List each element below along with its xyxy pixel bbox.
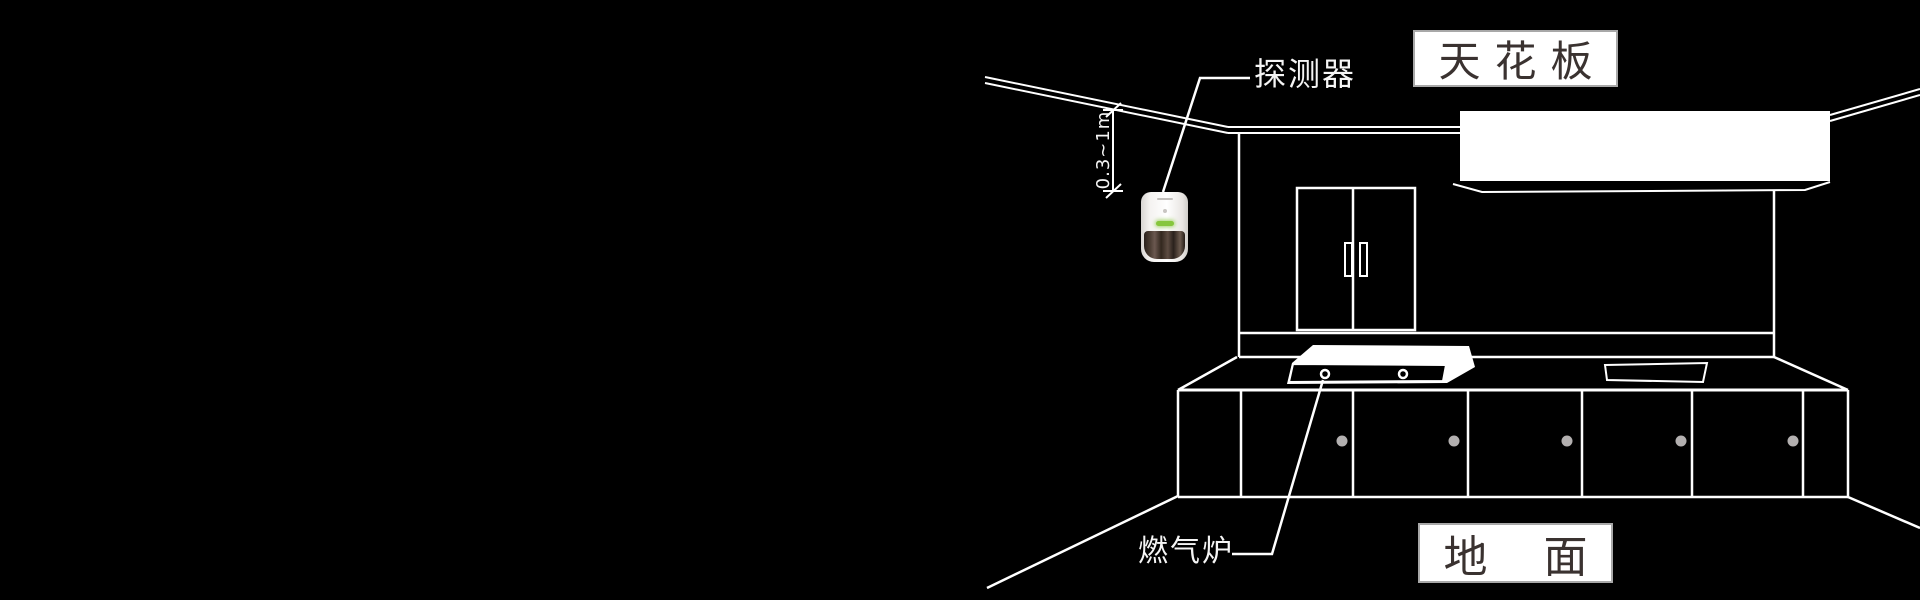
detector-led-green [1156, 221, 1174, 226]
gas-detector-device [1141, 192, 1188, 262]
gas-stove [1287, 345, 1475, 384]
detector-indicator-hole [1163, 209, 1167, 213]
countertop [1178, 357, 1848, 390]
detector-sensor-window [1144, 231, 1185, 259]
stove-leader-line [1232, 380, 1323, 554]
diagram-canvas: 探测器 0.3~1m 燃气炉 天花板 地 面 [0, 0, 1920, 600]
stove-label: 燃气炉 [1138, 537, 1234, 567]
cabinet-handle-right [1360, 243, 1367, 276]
detector-leader-line [1163, 78, 1250, 192]
ceiling-callout-box: 天花板 [1413, 30, 1618, 87]
cabinet-handle-left [1345, 243, 1352, 276]
base-cabinets [1178, 390, 1848, 497]
wall-cabinet [1297, 188, 1415, 330]
dimension-label: 0.3~1m [1095, 104, 1113, 196]
detector-brand-mark [1157, 198, 1173, 200]
detector-label: 探测器 [1254, 58, 1356, 90]
kitchen-line-art [0, 0, 1920, 600]
range-hood [1453, 111, 1830, 192]
sink-outline [1605, 363, 1707, 382]
cabinet-knobs [1337, 436, 1799, 447]
floor-callout-box: 地 面 [1418, 523, 1613, 583]
